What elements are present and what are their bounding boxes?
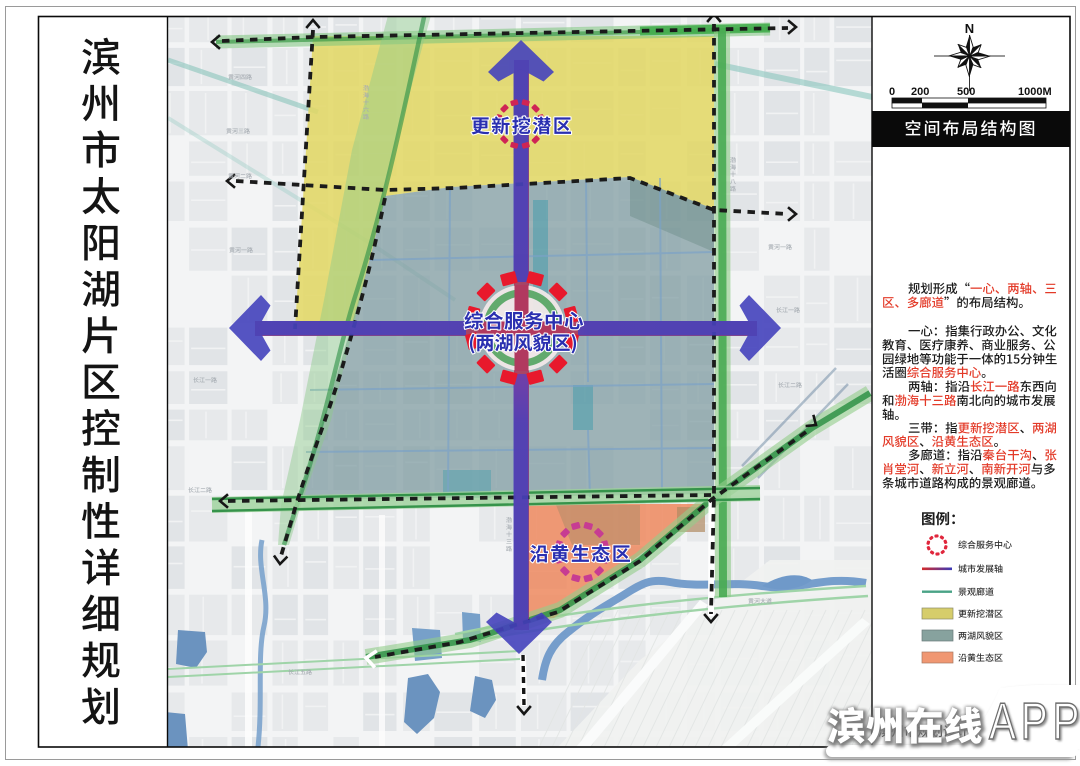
svg-text:APP: APP	[989, 692, 1080, 750]
svg-text:N: N	[965, 21, 974, 36]
svg-text:200: 200	[911, 86, 929, 98]
svg-text:500: 500	[957, 86, 975, 98]
svg-text:1000M: 1000M	[1018, 86, 1052, 98]
svg-text:0: 0	[889, 86, 895, 98]
